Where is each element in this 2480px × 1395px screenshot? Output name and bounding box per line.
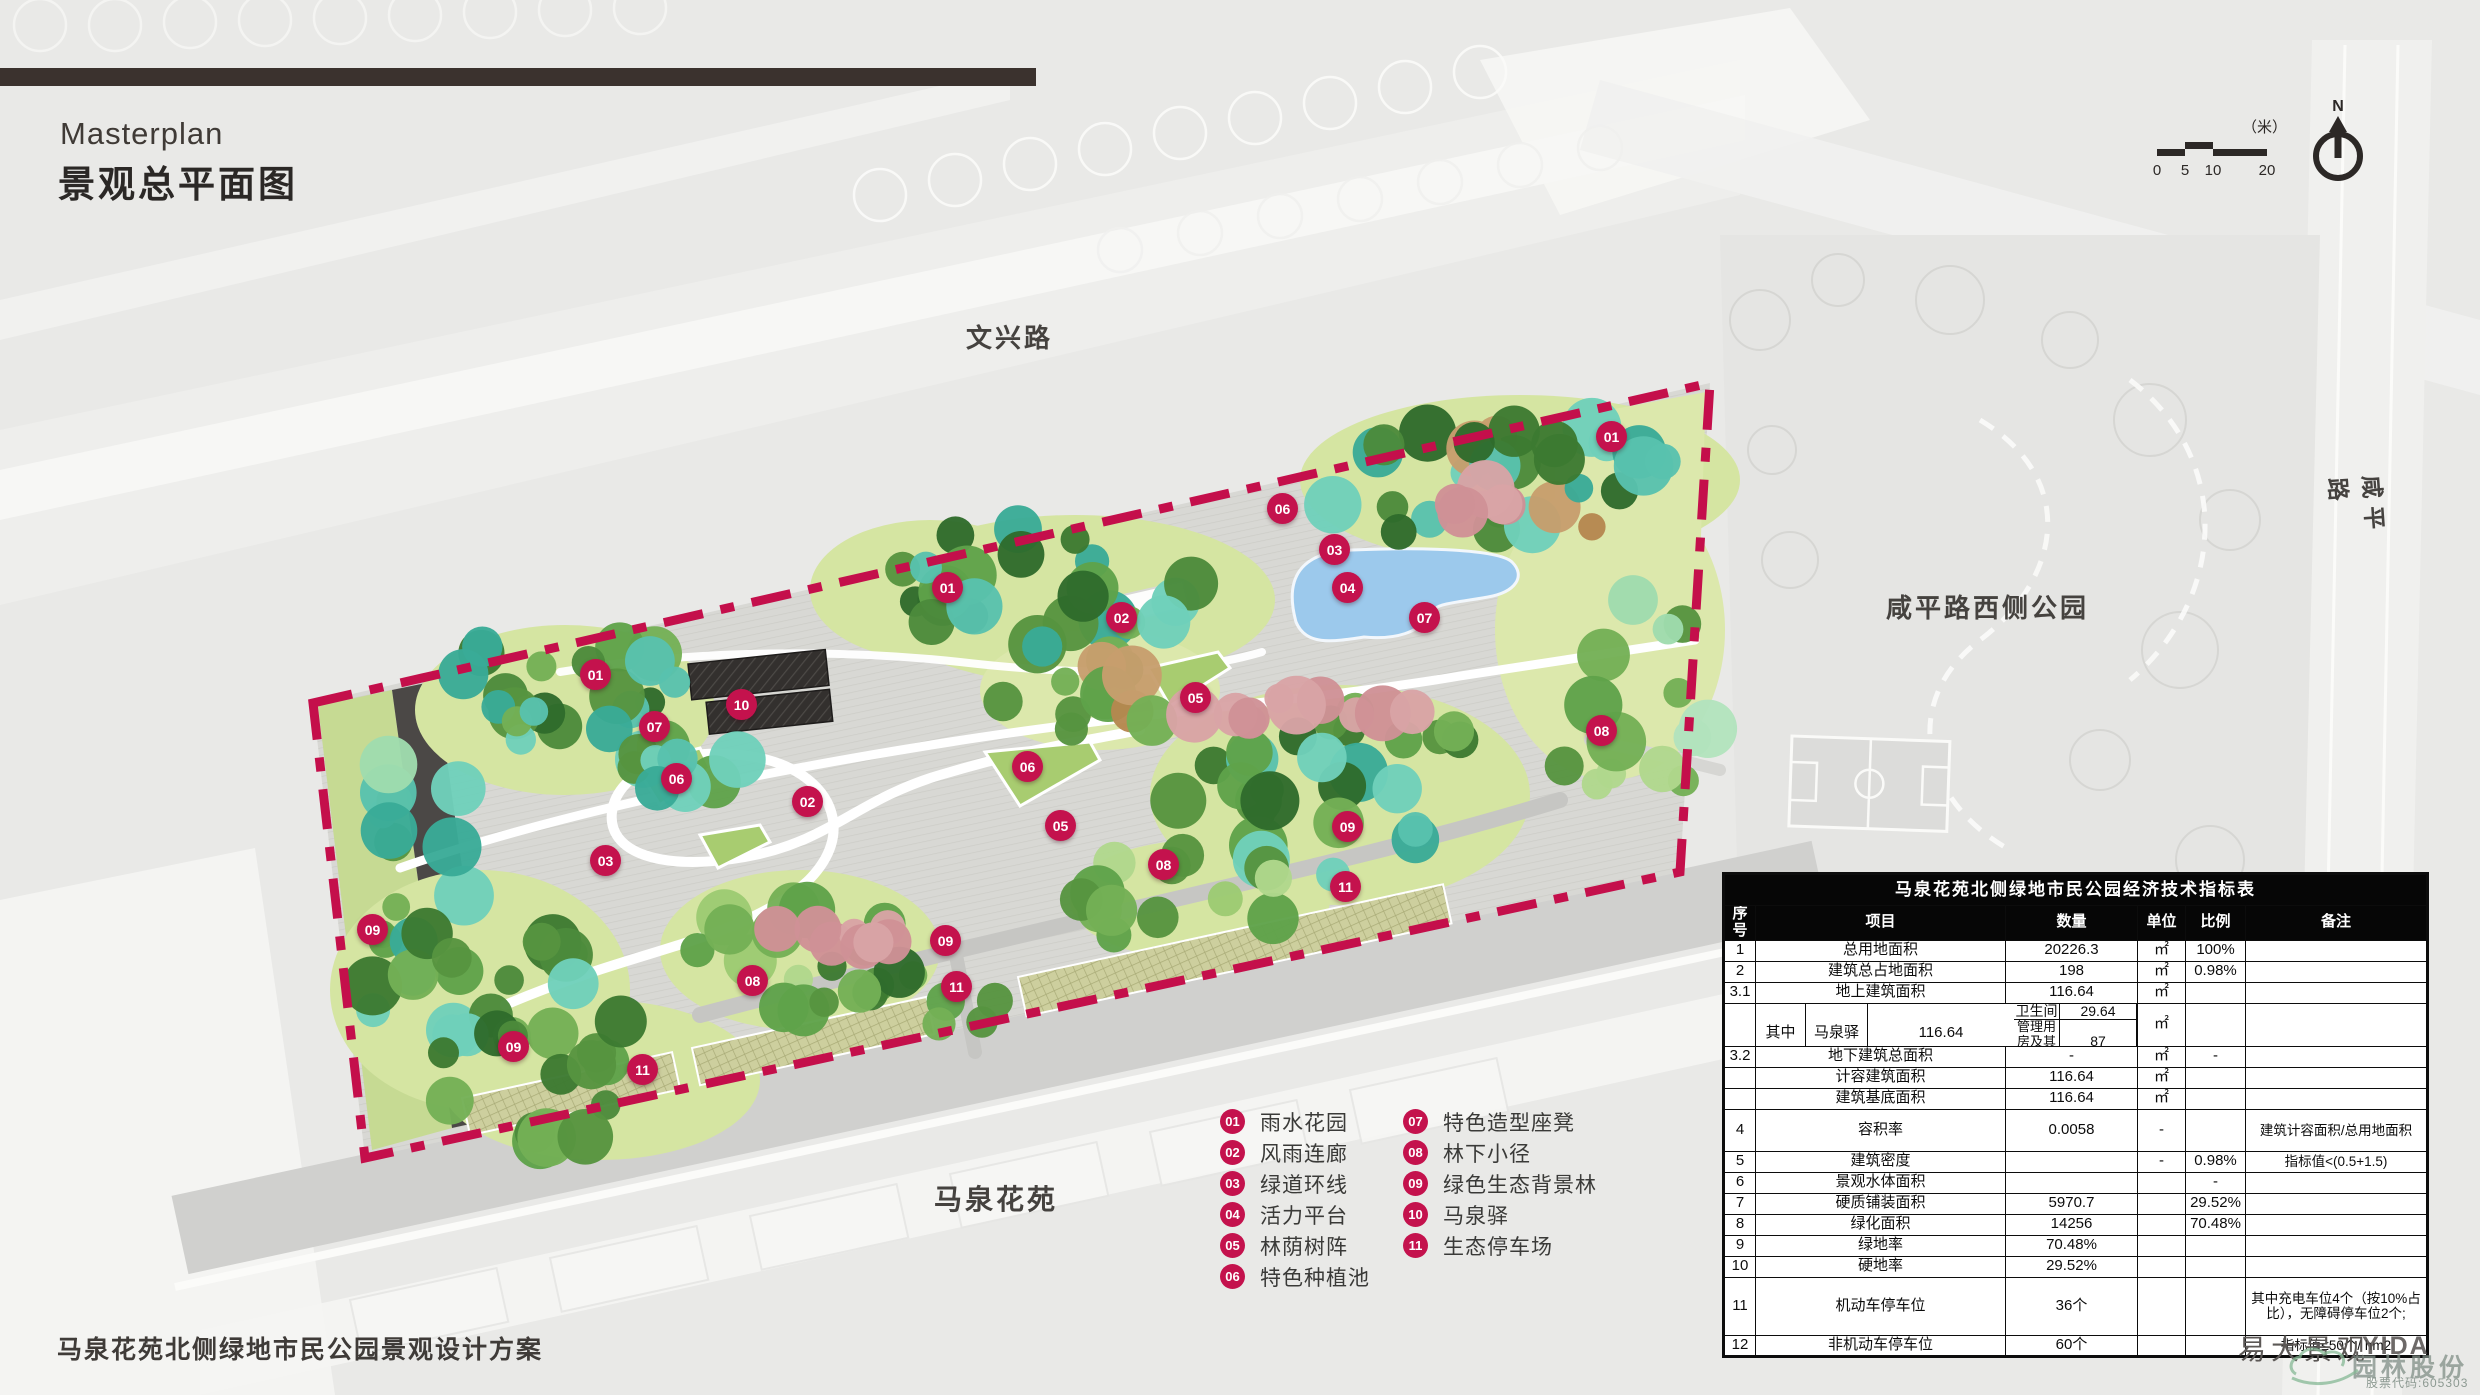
table-subrow: 其中 马泉驿 卫生间 29.64 管理用房及其他 87 116.64 ㎡ xyxy=(1724,1003,2428,1046)
cell-no: 2 xyxy=(1724,961,1756,982)
cell-unit: ㎡ xyxy=(2138,940,2186,961)
cell-item: 总用地面积 xyxy=(1756,940,2006,961)
cell-ratio xyxy=(2186,1109,2246,1151)
tree-canopy xyxy=(625,636,675,686)
plan-marker-07: 07 xyxy=(639,711,670,742)
tree-canopy xyxy=(527,1008,579,1060)
legend-number-badge: 11 xyxy=(1403,1233,1428,1258)
cell-qty: 116.64 xyxy=(2006,1067,2138,1088)
plan-marker-09: 09 xyxy=(930,925,961,956)
cell-ratio: - xyxy=(2186,1172,2246,1193)
cell-qty: 198 xyxy=(2006,961,2138,982)
legend-item: 03绿道环线 xyxy=(1220,1168,1370,1199)
tree-canopy xyxy=(1398,812,1433,847)
cell-note xyxy=(2246,1003,2428,1046)
cell-note xyxy=(2246,1235,2428,1256)
watermark-stock-code: 股票代码:605303 xyxy=(2366,1374,2468,1391)
tree-canopy xyxy=(1267,676,1326,735)
cell-no: 1 xyxy=(1724,940,1756,961)
tree-canopy xyxy=(1390,690,1435,735)
plan-marker-09: 09 xyxy=(1332,811,1363,842)
watermark-cloud-icon xyxy=(2284,1342,2368,1390)
cell-ratio xyxy=(2186,1277,2246,1335)
cell-qualifier: 其中 xyxy=(1756,1004,1806,1047)
cell-ratio: 0.98% xyxy=(2186,1151,2246,1172)
table-row: 3.2地下建筑总面积 -㎡ - xyxy=(1724,1046,2428,1067)
cell-item: 景观水体面积 xyxy=(1756,1172,2006,1193)
cell-ratio xyxy=(2186,1256,2246,1277)
table-row: 8绿化面积 14256 70.48% xyxy=(1724,1214,2428,1235)
cell-unit: ㎡ xyxy=(2138,982,2186,1003)
cell-note xyxy=(2246,1256,2428,1277)
cell-ratio: 70.48% xyxy=(2186,1214,2246,1235)
tree-canopy xyxy=(1373,764,1422,813)
estate-label-maquan: 马泉花苑 xyxy=(934,1178,1058,1218)
table-row: 10硬地率 29.52% xyxy=(1724,1256,2428,1277)
cell-no: 3.1 xyxy=(1724,982,1756,1003)
cell-unit: ㎡ xyxy=(2138,1088,2186,1109)
scale-unit-label: （米） xyxy=(2242,116,2287,137)
cell-qty: 116.64 xyxy=(2006,982,2138,1003)
cell-item: 地上建筑面积 xyxy=(1756,982,2006,1003)
tree-canopy xyxy=(423,817,482,876)
col-header: 比例 xyxy=(2186,906,2246,941)
col-header: 序号 xyxy=(1724,906,1756,941)
plan-marker-01: 01 xyxy=(1596,421,1627,452)
cell-ratio: 0.98% xyxy=(2186,961,2246,982)
cell-ratio xyxy=(2186,1067,2246,1088)
tree-canopy xyxy=(426,1077,474,1125)
park-label-xianping-west: 咸平路西侧公园 xyxy=(1886,588,2089,625)
cell-unit xyxy=(2138,1277,2186,1335)
tree-canopy xyxy=(759,983,809,1033)
cell-item: 建筑密度 xyxy=(1756,1151,2006,1172)
cell-sub-item: 卫生间 xyxy=(2014,1004,2060,1021)
cell-item: 机动车停车位 xyxy=(1756,1277,2006,1335)
tree-canopy xyxy=(1381,514,1417,550)
cell-qty: 5970.7 xyxy=(2006,1193,2138,1214)
cell-qty xyxy=(2006,1172,2138,1193)
plan-marker-04: 04 xyxy=(1332,572,1363,603)
cell-ratio xyxy=(2186,1235,2246,1256)
tree-canopy xyxy=(567,1040,616,1089)
legend-item: 05林荫树阵 xyxy=(1220,1230,1370,1261)
table-row: 建筑基底面积 116.64㎡ xyxy=(1724,1088,2428,1109)
cell-ratio: 100% xyxy=(2186,940,2246,961)
legend-number-badge: 05 xyxy=(1220,1233,1245,1258)
header-accent-bar xyxy=(0,68,1036,86)
legend: 01雨水花园02风雨连廊03绿道环线04活力平台05林荫树阵06特色种植池 07… xyxy=(1220,1106,1640,1316)
cell-item: 硬地率 xyxy=(1756,1256,2006,1277)
tree-canopy xyxy=(1577,629,1630,682)
scale-tick: 0 xyxy=(2153,162,2161,179)
cell-sub-item: 管理用房及其他 xyxy=(2014,1020,2060,1046)
legend-label: 活力平台 xyxy=(1260,1200,1348,1230)
cell-item: 计容建筑面积 xyxy=(1756,1067,2006,1088)
cell-item: 非机动车停车位 xyxy=(1756,1335,2006,1356)
tree-canopy xyxy=(1304,476,1361,533)
legend-item: 06特色种植池 xyxy=(1220,1261,1370,1292)
cell-no: 11 xyxy=(1724,1277,1756,1335)
legend-number-badge: 03 xyxy=(1220,1171,1245,1196)
cell-note xyxy=(2246,1172,2428,1193)
table-row: 1总用地面积 20226.3㎡ 100% xyxy=(1724,940,2428,961)
plan-marker-09: 09 xyxy=(357,914,388,945)
cell-ratio: 29.52% xyxy=(2186,1193,2246,1214)
road-label-xianping: 咸平路 xyxy=(2322,474,2396,569)
legend-label: 绿色生态背景林 xyxy=(1443,1169,1597,1199)
cell-unit: - xyxy=(2138,1151,2186,1172)
tree-canopy xyxy=(1208,881,1243,916)
tree-canopy xyxy=(431,761,486,816)
tree-canopy xyxy=(1608,575,1658,625)
plan-marker-05: 05 xyxy=(1180,682,1211,713)
cell-unit: ㎡ xyxy=(2138,961,2186,982)
tree-canopy xyxy=(1086,885,1137,936)
tree-canopy xyxy=(704,904,754,954)
cell-note xyxy=(2246,961,2428,982)
tree-canopy xyxy=(520,697,549,726)
scale-segment xyxy=(2157,149,2185,156)
cell-no xyxy=(1724,1003,1756,1046)
cell-qty: - xyxy=(2006,1046,2138,1067)
cell-unit xyxy=(2138,1214,2186,1235)
plan-marker-02: 02 xyxy=(1106,602,1137,633)
plan-marker-11: 11 xyxy=(941,971,972,1002)
cell-no xyxy=(1724,1067,1756,1088)
col-header: 项目 xyxy=(1756,906,2006,941)
cell-unit xyxy=(2138,1193,2186,1214)
table-row: 6景观水体面积 - xyxy=(1724,1172,2428,1193)
tree-canopy xyxy=(1240,771,1299,830)
table-row: 计容建筑面积 116.64㎡ xyxy=(1724,1067,2428,1088)
legend-label: 林荫树阵 xyxy=(1260,1231,1348,1261)
tree-canopy xyxy=(1255,860,1292,897)
tree-canopy xyxy=(548,958,599,1009)
table-row: 3.1地上建筑面积 116.64㎡ xyxy=(1724,982,2428,1003)
cell-no: 3.2 xyxy=(1724,1046,1756,1067)
col-header: 备注 xyxy=(2246,906,2428,941)
page-title-zh: 景观总平面图 xyxy=(58,154,298,208)
tree-canopy xyxy=(382,893,410,921)
tree-canopy xyxy=(983,682,1022,721)
cell-note: 指标值<(0.5+1.5) xyxy=(2246,1151,2428,1172)
scale-segment xyxy=(2185,142,2213,149)
table-row: 4容积率 0.0058- 建筑计容面积/总用地面积 xyxy=(1724,1109,2428,1151)
cell-qty: 70.48% xyxy=(2006,1235,2138,1256)
tree-canopy xyxy=(754,906,800,952)
tree-canopy xyxy=(1653,614,1684,645)
plan-marker-03: 03 xyxy=(1319,534,1350,565)
north-arrow-icon xyxy=(2306,112,2370,184)
cell-unit: ㎡ xyxy=(2138,1046,2186,1067)
legend-item: 10马泉驿 xyxy=(1403,1199,1597,1230)
cell-unit: ㎡ xyxy=(2138,1067,2186,1088)
legend-label: 特色造型座凳 xyxy=(1443,1107,1575,1137)
plan-marker-09: 09 xyxy=(498,1031,529,1062)
cell-no: 5 xyxy=(1724,1151,1756,1172)
tree-canopy xyxy=(1051,668,1079,696)
cell-item: 硬质铺装面积 xyxy=(1756,1193,2006,1214)
cell-ratio xyxy=(2186,1003,2246,1046)
cell-qty: 20226.3 xyxy=(2006,940,2138,961)
cell-note xyxy=(2246,1046,2428,1067)
table-row: 5建筑密度 - 0.98%指标值<(0.5+1.5) xyxy=(1724,1151,2428,1172)
tree-canopy xyxy=(794,906,841,953)
cell-qty: 116.64 xyxy=(2006,1088,2138,1109)
tree-canopy xyxy=(494,965,524,995)
cell-qty: 60个 xyxy=(2006,1335,2138,1356)
cell-unit xyxy=(2138,1235,2186,1256)
tree-canopy xyxy=(526,651,556,681)
legend-label: 风雨连廊 xyxy=(1260,1138,1348,1168)
legend-label: 马泉驿 xyxy=(1443,1200,1509,1230)
tree-canopy xyxy=(1247,893,1298,944)
tree-canopy xyxy=(1582,769,1613,800)
scale-tick: 10 xyxy=(2205,162,2222,179)
cell-no: 9 xyxy=(1724,1235,1756,1256)
cell-note xyxy=(2246,1214,2428,1235)
legend-item: 08林下小径 xyxy=(1403,1137,1597,1168)
cell-unit: ㎡ xyxy=(2138,1003,2186,1046)
cell-sub-qty: 87 xyxy=(2060,1020,2137,1046)
legend-item: 02风雨连廊 xyxy=(1220,1137,1370,1168)
cell-item: 地下建筑总面积 xyxy=(1756,1046,2006,1067)
cell-ratio: - xyxy=(2186,1046,2246,1067)
plan-marker-05: 05 xyxy=(1045,810,1076,841)
plan-marker-01: 01 xyxy=(580,659,611,690)
cell-group: 马泉驿 xyxy=(1806,1004,1868,1047)
cell-unit xyxy=(2138,1256,2186,1277)
legend-item: 11生态停车场 xyxy=(1403,1230,1597,1261)
tree-canopy xyxy=(1639,746,1685,792)
cell-unit xyxy=(2138,1335,2186,1356)
plan-marker-02: 02 xyxy=(792,786,823,817)
tree-canopy xyxy=(1022,626,1062,666)
cell-qty xyxy=(2006,1151,2138,1172)
plan-marker-11: 11 xyxy=(1330,871,1361,902)
cell-no: 12 xyxy=(1724,1335,1756,1356)
cell-item: 建筑总占地面积 xyxy=(1756,961,2006,982)
cell-no: 4 xyxy=(1724,1109,1756,1151)
cell-note: 其中充电车位4个（按10%占比），无障碍停车位2个; xyxy=(2246,1277,2428,1335)
legend-label: 林下小径 xyxy=(1443,1138,1531,1168)
table-row: 9绿地率 70.48% xyxy=(1724,1235,2428,1256)
tree-canopy xyxy=(1058,571,1109,622)
cell-no: 6 xyxy=(1724,1172,1756,1193)
cell-ratio xyxy=(2186,1335,2246,1356)
tree-canopy xyxy=(853,922,893,962)
cell-ratio xyxy=(2186,982,2246,1003)
scale-segment xyxy=(2213,149,2267,156)
scale-tick: 5 xyxy=(2181,162,2189,179)
cell-unit: - xyxy=(2138,1109,2186,1151)
tree-canopy xyxy=(809,988,838,1017)
tree-canopy xyxy=(360,736,418,794)
legend-number-badge: 02 xyxy=(1220,1140,1245,1165)
plan-marker-08: 08 xyxy=(1586,715,1617,746)
legend-label: 雨水花园 xyxy=(1260,1107,1348,1137)
legend-number-badge: 08 xyxy=(1403,1140,1428,1165)
legend-number-badge: 07 xyxy=(1403,1109,1428,1134)
cell-no: 10 xyxy=(1724,1256,1756,1277)
tree-canopy xyxy=(361,802,418,859)
tree-canopy xyxy=(523,923,561,961)
tree-canopy xyxy=(1578,513,1605,540)
legend-number-badge: 04 xyxy=(1220,1202,1245,1227)
cell-note: 建筑计容面积/总用地面积 xyxy=(2246,1109,2428,1151)
legend-number-badge: 10 xyxy=(1403,1202,1428,1227)
legend-label: 特色种植池 xyxy=(1260,1262,1370,1292)
scale-tick: 20 xyxy=(2259,162,2276,179)
tree-canopy xyxy=(428,1037,459,1068)
tree-canopy xyxy=(432,938,472,978)
table-row: 2建筑总占地面积 198㎡ 0.98% xyxy=(1724,961,2428,982)
cell-qty: 36个 xyxy=(2006,1277,2138,1335)
tree-canopy xyxy=(1434,711,1474,751)
legend-item: 07特色造型座凳 xyxy=(1403,1106,1597,1137)
plan-marker-06: 06 xyxy=(1012,751,1043,782)
plan-marker-06: 06 xyxy=(1267,493,1298,524)
table-row: 7硬质铺装面积 5970.7 29.52% xyxy=(1724,1193,2428,1214)
cell-note xyxy=(2246,1067,2428,1088)
cell-note xyxy=(2246,1088,2428,1109)
plan-marker-08: 08 xyxy=(1148,849,1179,880)
tree-canopy xyxy=(595,996,647,1048)
cell-no xyxy=(1724,1088,1756,1109)
legend-number-badge: 01 xyxy=(1220,1109,1245,1134)
tree-canopy xyxy=(1137,595,1190,648)
table-header-row: 序号 项目 数量 单位 比例 备注 xyxy=(1724,906,2428,941)
legend-item: 01雨水花园 xyxy=(1220,1106,1370,1137)
cell-no: 7 xyxy=(1724,1193,1756,1214)
plan-marker-08: 08 xyxy=(737,965,768,996)
plan-marker-11: 11 xyxy=(627,1054,658,1085)
tree-canopy xyxy=(1150,773,1206,829)
legend-number-badge: 09 xyxy=(1403,1171,1428,1196)
tree-canopy xyxy=(1545,747,1584,786)
plan-marker-03: 03 xyxy=(590,845,621,876)
legend-item: 09绿色生态背景林 xyxy=(1403,1168,1597,1199)
legend-label: 生态停车场 xyxy=(1443,1231,1553,1261)
cell-sub-total: 116.64 xyxy=(1868,1004,2014,1047)
legend-number-badge: 06 xyxy=(1220,1264,1245,1289)
north-arrow: N xyxy=(2306,98,2370,184)
cell-item: 绿地率 xyxy=(1756,1235,2006,1256)
legend-label: 绿道环线 xyxy=(1260,1169,1348,1199)
economic-indicator-table: 马泉花苑北侧绿地市民公园经济技术指标表 序号 项目 数量 单位 比例 备注 1总… xyxy=(1722,872,2429,1358)
col-header: 数量 xyxy=(2006,906,2138,941)
plan-marker-10: 10 xyxy=(726,689,757,720)
legend-item: 04活力平台 xyxy=(1220,1199,1370,1230)
plan-marker-01: 01 xyxy=(932,572,963,603)
cell-item: 建筑基底面积 xyxy=(1756,1088,2006,1109)
plan-marker-07: 07 xyxy=(1409,602,1440,633)
cell-ratio xyxy=(2186,1088,2246,1109)
tree-canopy xyxy=(1297,733,1347,783)
table-row: 11机动车停车位 36个 其中充电车位4个（按10%占比），无障碍停车位2个; xyxy=(1724,1277,2428,1335)
tree-canopy xyxy=(838,969,881,1012)
cell-note xyxy=(2246,982,2428,1003)
cell-qty: 29.52% xyxy=(2006,1256,2138,1277)
cell-sub-qty: 29.64 xyxy=(2060,1004,2137,1021)
tree-canopy xyxy=(709,731,766,788)
page-title-en: Masterplan xyxy=(60,116,223,152)
cell-qty: 14256 xyxy=(2006,1214,2138,1235)
tree-canopy xyxy=(1435,484,1475,524)
road-label-wenxing: 文兴路 xyxy=(966,318,1053,355)
cell-qty: 0.0058 xyxy=(2006,1109,2138,1151)
cell-item: 绿化面积 xyxy=(1756,1214,2006,1235)
cell-note xyxy=(2246,1193,2428,1214)
col-header: 单位 xyxy=(2138,906,2186,941)
cell-note xyxy=(2246,940,2428,961)
cell-unit xyxy=(2138,1172,2186,1193)
cell-no: 8 xyxy=(1724,1214,1756,1235)
plan-marker-06: 06 xyxy=(661,763,692,794)
cell-item: 容积率 xyxy=(1756,1109,2006,1151)
tree-canopy xyxy=(1137,897,1179,939)
cell-sub-breakdown: 其中 马泉驿 卫生间 29.64 管理用房及其他 87 116.64 xyxy=(1756,1003,2138,1046)
tree-canopy xyxy=(1228,697,1269,738)
table-title: 马泉花苑北侧绿地市民公园经济技术指标表 xyxy=(1724,874,2428,906)
project-title: 马泉花苑北侧绿地市民公园景观设计方案 xyxy=(57,1330,543,1366)
